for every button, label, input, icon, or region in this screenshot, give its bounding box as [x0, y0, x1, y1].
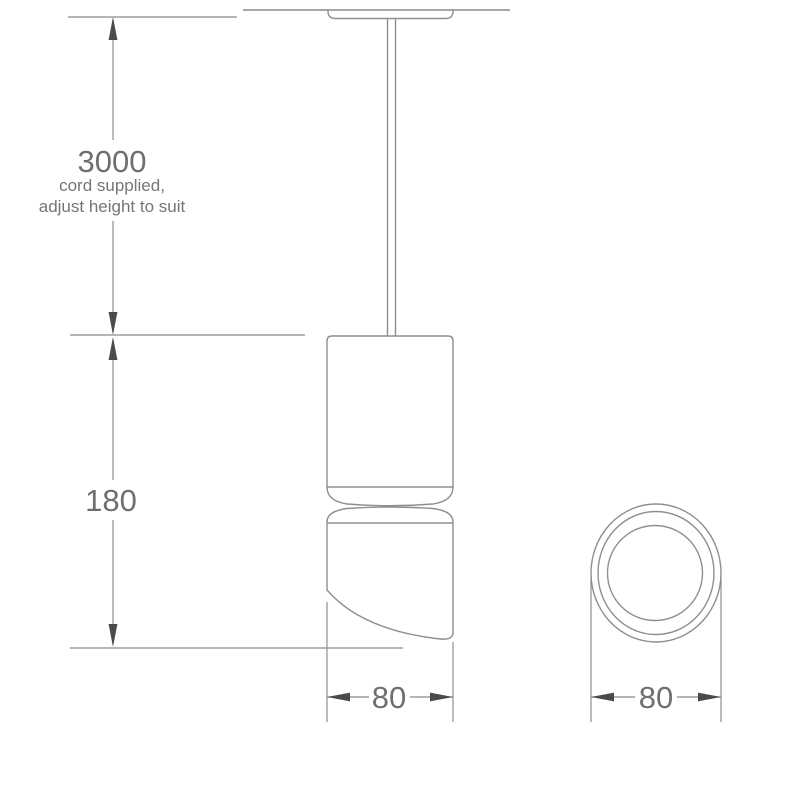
- arrowhead-up: [109, 17, 118, 40]
- dimension-width-front-80: 80: [327, 602, 453, 722]
- dim-label-3000: 3000: [78, 144, 147, 179]
- lens-circle: [608, 526, 703, 621]
- dimension-height-180: 180: [70, 335, 403, 648]
- front-view: [243, 10, 510, 639]
- arrowhead-left: [591, 693, 614, 702]
- inner-rim-circle: [598, 512, 714, 635]
- lamp-head-angled-cut: [327, 590, 453, 639]
- lamp-body: [327, 336, 453, 506]
- arrowhead-right: [698, 693, 721, 702]
- dim-note-line2: adjust height to suit: [39, 197, 186, 216]
- drawing-canvas: 3000 cord supplied, adjust height to sui…: [0, 0, 800, 800]
- arrowhead-left: [327, 693, 350, 702]
- pendant-light-technical-drawing: 3000 cord supplied, adjust height to sui…: [0, 0, 800, 800]
- arrowhead-down: [109, 624, 118, 647]
- outer-rim-circle: [591, 504, 721, 642]
- arrowhead-up: [109, 337, 118, 360]
- lamp-body-outline: [327, 336, 453, 487]
- lamp-head: [327, 507, 453, 639]
- dimension-cord-3000: 3000 cord supplied, adjust height to sui…: [39, 17, 237, 335]
- arrowhead-right: [430, 693, 453, 702]
- dimension-diameter-80: 80: [591, 577, 721, 722]
- lamp-head-top-cap: [327, 507, 453, 522]
- dim-note-line1: cord supplied,: [59, 176, 165, 195]
- ceiling-canopy: [328, 10, 453, 19]
- lamp-body-bottom-cap: [327, 487, 453, 506]
- arrowhead-down: [109, 312, 118, 335]
- dim-label-180: 180: [85, 483, 137, 518]
- dim-label-80-front: 80: [372, 680, 406, 715]
- bottom-view: [591, 504, 721, 642]
- dim-label-80-bottom: 80: [639, 680, 673, 715]
